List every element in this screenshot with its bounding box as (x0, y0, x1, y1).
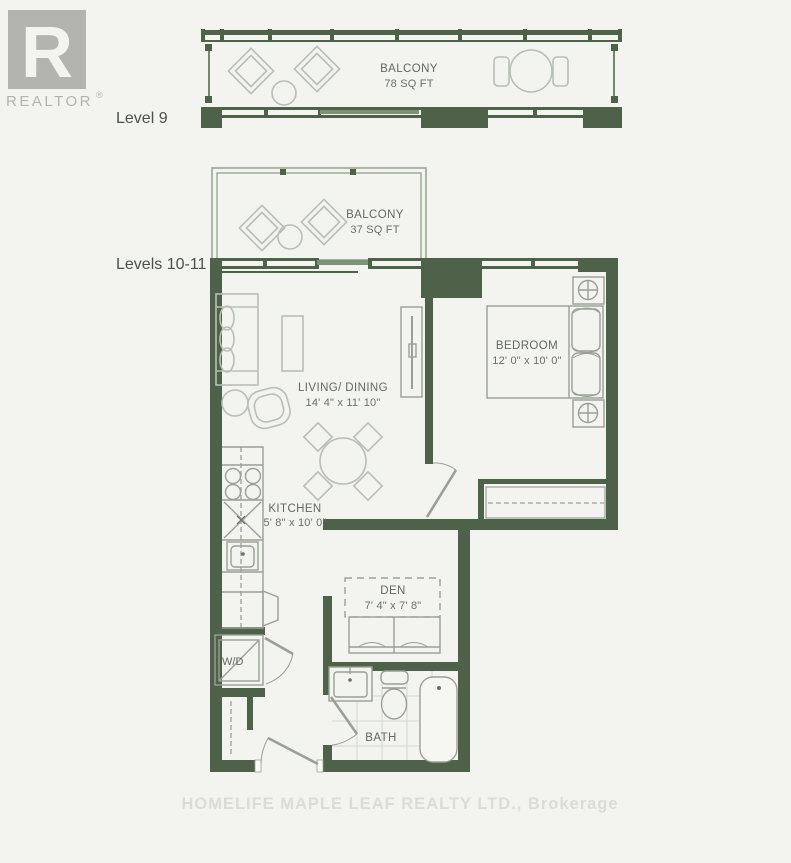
dining-set-icon (304, 423, 382, 500)
door-jamb (255, 760, 261, 772)
balcony1011-area: 37 SQ FT (350, 224, 399, 236)
den: DEN 7' 4" x 7' 8" (345, 578, 440, 653)
patio-chair-icon (228, 48, 273, 93)
living-dining-dims: 14' 4" x 11' 10" (306, 397, 381, 409)
bathroom: BATH (329, 667, 458, 762)
bed-icon (487, 306, 603, 398)
patio-chair-icon (294, 46, 339, 91)
door-jamb (317, 760, 323, 772)
nightstand-icon (573, 277, 604, 304)
realtor-logo-word: REALTOR (6, 93, 93, 110)
bedroom-dims: 12' 0" x 10' 0" (492, 355, 561, 367)
bedroom-name: BEDROOM (496, 340, 558, 352)
unit-walls (210, 258, 618, 772)
laundry-door-swing (265, 638, 293, 684)
patio-chair-icon (301, 199, 346, 244)
kitchen-dims: 5' 8" x 10' 0" (263, 517, 326, 529)
bath-name: BATH (365, 732, 396, 744)
entry-door-swing (261, 738, 318, 764)
bath-sink-icon (329, 667, 372, 701)
floor-plan-svg: R REALTOR ® Level 9 Levels 10-11 (0, 0, 791, 863)
dishwasher-icon (224, 502, 261, 538)
kitchen-name: KITCHEN (268, 503, 321, 515)
toilet-icon (381, 671, 408, 719)
balcony-level-9: BALCONY 78 SQ FT (201, 29, 622, 128)
patio-chair-icon (239, 205, 284, 250)
den-bed-icon (349, 617, 440, 653)
balcony-levels-10-11: BALCONY 37 SQ FT (212, 168, 426, 260)
fridge-icon (263, 591, 278, 626)
levels-10-11-label: Levels 10-11 (116, 256, 207, 273)
nightstand-icon (573, 400, 604, 427)
realtor-logo-r-icon: R (21, 13, 73, 93)
side-table-icon (278, 225, 302, 249)
balcony1011-name: BALCONY (346, 209, 404, 221)
laundry-label: W/D (222, 656, 243, 668)
console-table-icon (282, 316, 303, 371)
kitchen-counter (222, 447, 263, 628)
realtor-registered-mark: ® (96, 90, 103, 100)
brokerage-watermark: HOMELIFE MAPLE LEAF REALTY LTD., Brokera… (181, 795, 618, 813)
den-name: DEN (380, 585, 405, 597)
kitchen-sink-icon (227, 542, 258, 570)
lounge-chair-icon (245, 384, 293, 431)
tv-console-icon (401, 307, 422, 397)
bathtub-icon (420, 677, 457, 762)
realtor-logo: R REALTOR ® (6, 10, 103, 110)
balcony9-name: BALCONY (380, 63, 438, 75)
sofa-icon (216, 294, 258, 385)
kitchen: KITCHEN 5' 8" x 10' 0" (222, 447, 327, 628)
bedroom-closet (486, 487, 605, 518)
stove-icon (226, 469, 261, 500)
balcony9-furniture (228, 46, 568, 105)
laundry-closet: W/D (215, 635, 293, 685)
balcony9-wall (201, 107, 622, 128)
side-table-icon (272, 81, 296, 105)
living-dining-name: LIVING/ DINING (298, 382, 388, 394)
living-dining-room: LIVING/ DINING 14' 4" x 11' 10" (216, 294, 422, 500)
patio-table-set-icon (494, 50, 568, 92)
floor-plan-page: R REALTOR ® Level 9 Levels 10-11 (0, 0, 791, 863)
bedroom-door-swing (427, 463, 456, 517)
level-9-label: Level 9 (116, 110, 168, 127)
den-dims: 7' 4" x 7' 8" (365, 600, 422, 612)
round-table-icon (222, 390, 248, 416)
balcony9-area: 78 SQ FT (384, 78, 433, 90)
